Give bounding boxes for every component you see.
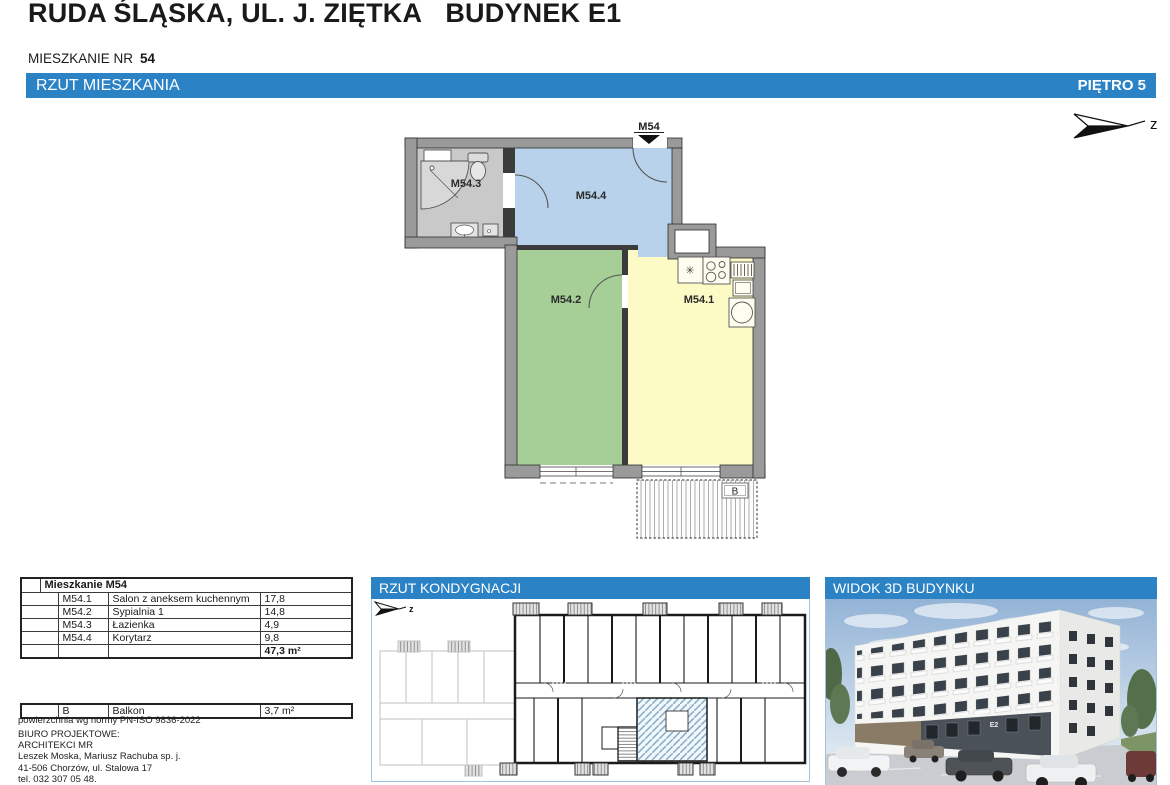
building-sign: E2 xyxy=(990,722,999,729)
room-name: Salon z aneksem kuchennym xyxy=(108,593,260,606)
table-row: M54.3 Łazienka 4,9 xyxy=(21,619,352,632)
balcony: B xyxy=(637,480,757,538)
total-area: 47,3 m² xyxy=(260,645,352,659)
room-code: M54.3 xyxy=(58,619,108,632)
office-label: BIURO PROJEKTOWE: xyxy=(18,729,181,740)
storey-plan-drawing: z xyxy=(372,599,809,780)
storey-north-arrow-icon: z xyxy=(375,602,414,616)
entrance-label: M54 xyxy=(638,121,660,133)
view3d-panel-title: WIDOK 3D BUDYNKU xyxy=(833,580,975,596)
storey-plan-panel: RZUT KONDYGNACJI xyxy=(371,577,810,782)
room-code: M54.4 xyxy=(58,632,108,645)
norm-note: powierzchnia wg normy PN-ISO 9836-2022 xyxy=(18,715,201,726)
apartment-subtitle: MIESZKANIE NR54 xyxy=(28,51,155,66)
label-m54-1: M54.1 xyxy=(684,294,715,306)
faded-section xyxy=(380,641,515,776)
room-area: 9,8 xyxy=(260,632,352,645)
storey-panel-header: RZUT KONDYGNACJI xyxy=(371,577,810,599)
svg-text:✳: ✳ xyxy=(685,265,694,277)
office-line: Leszek Moska, Mariusz Rachuba sp. j. xyxy=(18,751,181,762)
office-line: ARCHITEKCI MR xyxy=(18,740,181,751)
room-hall-ext xyxy=(638,245,672,257)
apartment-number: 54 xyxy=(140,51,155,66)
table-row: 47,3 m² xyxy=(21,645,352,659)
apartment-floor-plan: B ✳ xyxy=(395,108,780,550)
compass-letter: z xyxy=(1150,116,1158,133)
north-arrow-icon: z xyxy=(1066,106,1166,144)
storey-compass-letter: z xyxy=(409,604,414,614)
table-row: M54.1 Salon z aneksem kuchennym 17,8 xyxy=(21,593,352,606)
area-table-title: Mieszkanie M54 xyxy=(40,578,352,593)
room-code: M54.1 xyxy=(58,593,108,606)
section-title: RZUT MIESZKANIA xyxy=(36,77,180,95)
label-m54-2: M54.2 xyxy=(551,294,582,306)
room-area: 17,8 xyxy=(260,593,352,606)
view3d-panel-content: E2 xyxy=(825,599,1157,785)
bold-section xyxy=(500,603,805,775)
balcony-label: B xyxy=(732,487,739,498)
floor-label: PIĘTRO 5 xyxy=(1078,77,1146,94)
storey-panel-title: RZUT KONDYGNACJI xyxy=(379,580,521,596)
label-m54-4: M54.4 xyxy=(576,190,607,202)
room-name: Korytarz xyxy=(108,632,260,645)
plan-sheet: RUDA ŚLĄSKA, UL. J. ZIĘTKA BUDYNEK E1 MI… xyxy=(0,0,1170,785)
room-code: M54.2 xyxy=(58,606,108,619)
room-bedroom xyxy=(517,248,622,465)
room-area: 14,8 xyxy=(260,606,352,619)
section-header-bar: RZUT MIESZKANIA PIĘTRO 5 xyxy=(26,73,1156,98)
office-line: 41-506 Chorzów, ul. Stalowa 17 xyxy=(18,763,181,774)
page-title: RUDA ŚLĄSKA, UL. J. ZIĘTKA BUDYNEK E1 xyxy=(28,0,621,29)
apartment-label: MIESZKANIE NR xyxy=(28,51,133,66)
room-area: 4,9 xyxy=(260,619,352,632)
room-name: Sypialnia 1 xyxy=(108,606,260,619)
label-m54-3: M54.3 xyxy=(451,178,482,190)
table-row: Mieszkanie M54 xyxy=(21,578,352,593)
design-office-info: BIURO PROJEKTOWE: ARCHITEKCI MR Leszek M… xyxy=(18,729,181,785)
room-name: Łazienka xyxy=(108,619,260,632)
table-row: M54.4 Korytarz 9,8 xyxy=(21,632,352,645)
shaft xyxy=(675,230,709,253)
view3d-panel-header: WIDOK 3D BUDYNKU xyxy=(825,577,1157,599)
building-3d-render: E2 xyxy=(826,599,1156,785)
balcony-area: 3,7 m² xyxy=(260,704,352,718)
building-3d-panel: WIDOK 3D BUDYNKU xyxy=(825,577,1157,785)
storey-panel-content: z xyxy=(371,599,810,782)
table-row: M54.2 Sypialnia 1 14,8 xyxy=(21,606,352,619)
area-table: Mieszkanie M54 M54.1 Salon z aneksem kuc… xyxy=(20,577,353,659)
office-line: tel. 032 307 05 48. xyxy=(18,774,181,785)
